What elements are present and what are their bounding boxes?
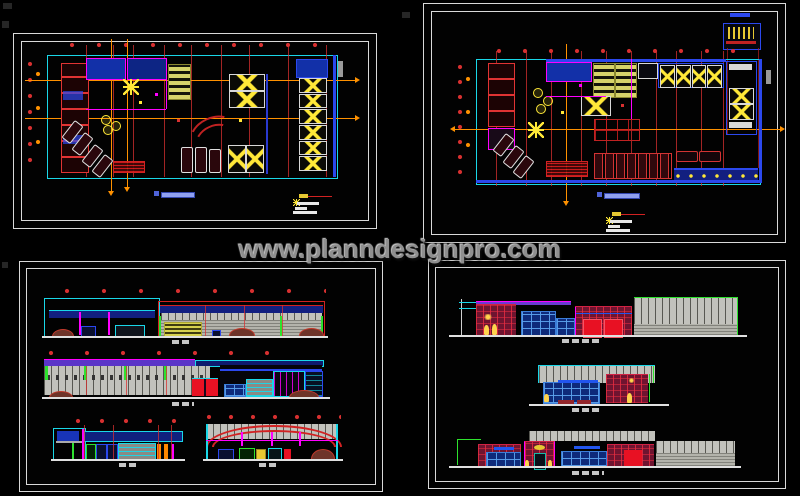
wall-block — [63, 91, 83, 100]
strip-bar — [729, 122, 752, 128]
window-grid — [521, 311, 556, 337]
corrugated-band — [161, 313, 322, 320]
partition-wall — [546, 96, 606, 97]
parked-cars-row — [594, 153, 672, 179]
strip-bar — [729, 64, 752, 70]
drawing-title-block — [172, 340, 192, 344]
stair-block — [229, 91, 265, 108]
door-panel — [192, 379, 204, 396]
drawing-title-block — [259, 463, 279, 467]
column — [336, 424, 338, 460]
window-grid — [561, 451, 607, 467]
showroom-wall — [476, 304, 516, 336]
column — [206, 424, 208, 460]
workbench-rows — [168, 64, 191, 100]
truss-cell — [676, 65, 691, 88]
scan-noise — [3, 3, 12, 9]
logo-badge — [534, 445, 545, 450]
showroom-wall — [606, 374, 648, 403]
canopy-post — [461, 299, 462, 335]
fixture-dot — [155, 93, 158, 96]
drawing-title-block — [572, 408, 602, 412]
edge-line — [737, 298, 738, 335]
legend-text-bar — [606, 229, 630, 232]
column — [299, 432, 301, 446]
column — [241, 432, 243, 446]
window-grid — [224, 384, 246, 397]
arrow-down-icon — [108, 191, 114, 196]
bay-strip — [726, 61, 757, 135]
grid-line — [84, 425, 85, 459]
fixture-dot — [139, 101, 142, 104]
grid-marker-row — [75, 418, 180, 425]
drawing-title-bar — [161, 192, 195, 198]
truss-cell — [299, 141, 327, 156]
room-block — [86, 58, 126, 80]
drawing-title-block — [172, 402, 194, 406]
room-block — [546, 62, 592, 82]
car-lift-grid — [594, 119, 640, 141]
column — [271, 432, 273, 446]
entry-tower — [524, 441, 555, 468]
truss-cell — [299, 156, 327, 171]
legend-text-bar — [293, 211, 317, 214]
double-door-red — [192, 378, 218, 396]
person-figure — [627, 393, 632, 403]
arrow-right-icon — [355, 77, 360, 83]
edge-line — [653, 366, 654, 383]
drawing-title-block — [562, 339, 600, 343]
garage-door — [246, 379, 273, 397]
sheet-floor-plan-2 — [423, 3, 786, 243]
truss-cell — [707, 65, 722, 88]
equipment-block — [338, 61, 343, 77]
grid-marker-row — [496, 48, 746, 55]
person-figure — [492, 324, 497, 335]
ground-line — [529, 404, 669, 406]
legend-swatch — [612, 212, 621, 216]
sheet-floor-plan-1 — [13, 33, 377, 229]
ground-line — [449, 466, 741, 468]
stair-block — [229, 74, 265, 91]
room-block — [296, 59, 328, 78]
grid-line — [282, 305, 283, 336]
lintel-line — [575, 313, 632, 314]
ground-line — [42, 336, 328, 338]
round-table — [101, 115, 111, 125]
lamp-glow — [628, 378, 635, 383]
grid-line — [158, 425, 159, 459]
grid-marker-row — [206, 414, 341, 421]
grid-marker-row — [69, 42, 334, 49]
detail-label-bar — [730, 13, 750, 17]
drawing-title-bar — [604, 193, 640, 199]
ground-line — [203, 459, 343, 461]
hatched-zone — [546, 161, 588, 177]
door-panel — [206, 379, 218, 396]
column — [45, 366, 48, 380]
grid-line — [126, 366, 127, 395]
fixture-dot — [177, 119, 180, 122]
grid-marker-row — [48, 350, 298, 357]
frame-line — [457, 439, 458, 465]
truss-cell — [729, 88, 754, 104]
partition-wall — [166, 59, 167, 109]
person-figure — [484, 325, 489, 335]
grid-marker-column — [457, 64, 464, 178]
wall — [476, 180, 762, 183]
grid-line — [86, 366, 87, 395]
sign-band — [558, 380, 598, 383]
column — [108, 312, 110, 335]
fixture-dot — [561, 111, 564, 114]
grid-line — [171, 425, 172, 459]
drawing-title-square — [154, 191, 159, 196]
grid-marker-column-orange — [35, 71, 42, 173]
arrow-down-icon — [563, 201, 569, 206]
grid-marker-column-orange — [465, 76, 472, 176]
fascia-band — [160, 305, 323, 313]
drawing-title-block — [119, 463, 137, 467]
wall-panel — [57, 431, 79, 441]
legend — [293, 194, 335, 216]
truss-cell — [299, 125, 327, 140]
arrow-left-icon — [450, 126, 455, 132]
elevation-a-left — [44, 298, 160, 338]
round-table — [533, 88, 543, 98]
doors-wall — [607, 444, 654, 467]
arrow-down-icon — [124, 187, 130, 192]
section-c-tower — [53, 428, 86, 461]
drawing-title-square — [597, 192, 602, 197]
car — [699, 151, 721, 162]
truss-cell — [299, 78, 327, 93]
section-c-band — [84, 431, 183, 442]
grid-line — [221, 45, 222, 177]
column — [172, 444, 174, 459]
wall — [759, 59, 762, 183]
elevation-a-right — [158, 301, 325, 338]
truss-cell — [660, 65, 675, 88]
drawing-title-block — [572, 471, 604, 475]
column — [159, 316, 161, 336]
grid-marker-row — [64, 288, 326, 295]
column-orange — [164, 444, 168, 459]
edge-line — [649, 374, 650, 402]
sheet-elevations-1 — [19, 261, 383, 492]
stair-block — [581, 96, 611, 116]
fixture-dot — [239, 119, 242, 122]
ground-line — [51, 459, 185, 461]
showroom-wall — [478, 444, 521, 467]
floor-slab — [56, 441, 82, 443]
sign-band — [574, 446, 600, 449]
edge-line — [575, 307, 576, 336]
grid-line — [205, 305, 206, 336]
legend-text-bar — [610, 220, 632, 223]
floor-plan-1 — [39, 49, 345, 190]
corrugated-wall — [656, 441, 735, 466]
truss-cell — [299, 109, 327, 124]
wall — [546, 59, 726, 62]
arrow-right-icon — [780, 126, 785, 132]
truss-row — [658, 63, 724, 88]
car — [676, 151, 698, 162]
legend-text-bar — [297, 202, 319, 205]
doors-wall — [575, 306, 632, 336]
car — [209, 149, 221, 173]
bay-strip — [299, 78, 327, 171]
wall-texture — [634, 324, 738, 335]
column — [72, 443, 74, 460]
legend-line — [621, 214, 645, 215]
round-table — [103, 125, 113, 135]
sheet-elevations-2 — [428, 260, 786, 489]
workbench-rows — [615, 63, 637, 98]
partition-wall — [631, 59, 632, 119]
elevation-b-band-left — [44, 359, 195, 366]
lamp-glow — [483, 314, 493, 320]
detail-base — [726, 41, 756, 44]
door-red — [284, 449, 291, 459]
frame-line — [457, 439, 481, 440]
arrow-right-icon — [355, 115, 360, 121]
door-panel — [624, 450, 642, 467]
plant-symbol — [528, 122, 544, 138]
watermark-text: www.planndesignpro.com — [0, 234, 800, 265]
wall-texture — [656, 453, 735, 466]
detail-bars — [728, 27, 754, 39]
ground-line — [42, 397, 330, 399]
truss-cell — [692, 65, 707, 88]
window-dash-row — [47, 375, 207, 380]
garage-door — [164, 322, 202, 337]
grid-line — [288, 45, 289, 177]
legend-swatch — [299, 194, 308, 198]
room-block — [638, 63, 658, 79]
stair-block — [228, 145, 246, 173]
ground-line — [449, 335, 747, 337]
grid-line — [113, 425, 114, 459]
grid-line — [166, 366, 167, 395]
truss-cell — [729, 104, 754, 120]
corrugated-wall — [44, 366, 210, 395]
plant-symbol — [123, 79, 139, 95]
partition-wall — [266, 74, 268, 174]
round-table — [536, 104, 546, 114]
sign-band — [494, 447, 514, 450]
scan-noise — [402, 12, 410, 18]
room-block — [127, 58, 167, 80]
edge-line — [634, 297, 738, 298]
corrugated-wall — [529, 431, 655, 441]
scan-noise — [2, 21, 9, 28]
workbench-rows — [593, 63, 615, 98]
floor-plan-2 — [471, 56, 764, 187]
fixture-dot — [579, 84, 582, 87]
corrugated-wall — [634, 298, 738, 335]
stair-block — [246, 145, 264, 173]
fixture-dot — [621, 104, 624, 107]
equipment-block — [766, 70, 771, 84]
hatched-zone — [113, 161, 145, 173]
wall — [333, 55, 336, 177]
car — [181, 147, 193, 173]
fascia-band — [49, 310, 155, 318]
grid-marker-column — [27, 61, 34, 173]
detail-box — [723, 23, 761, 50]
service-bays — [488, 63, 515, 127]
legend — [606, 212, 648, 234]
person-figure — [544, 394, 549, 402]
legend-text-bar — [608, 225, 620, 228]
partition-wall — [86, 109, 166, 110]
truss-cell — [299, 94, 327, 109]
legend-line — [308, 196, 332, 197]
cad-preview-canvas: www.planndesignpro.com — [0, 0, 800, 496]
legend-text-bar — [295, 207, 307, 210]
